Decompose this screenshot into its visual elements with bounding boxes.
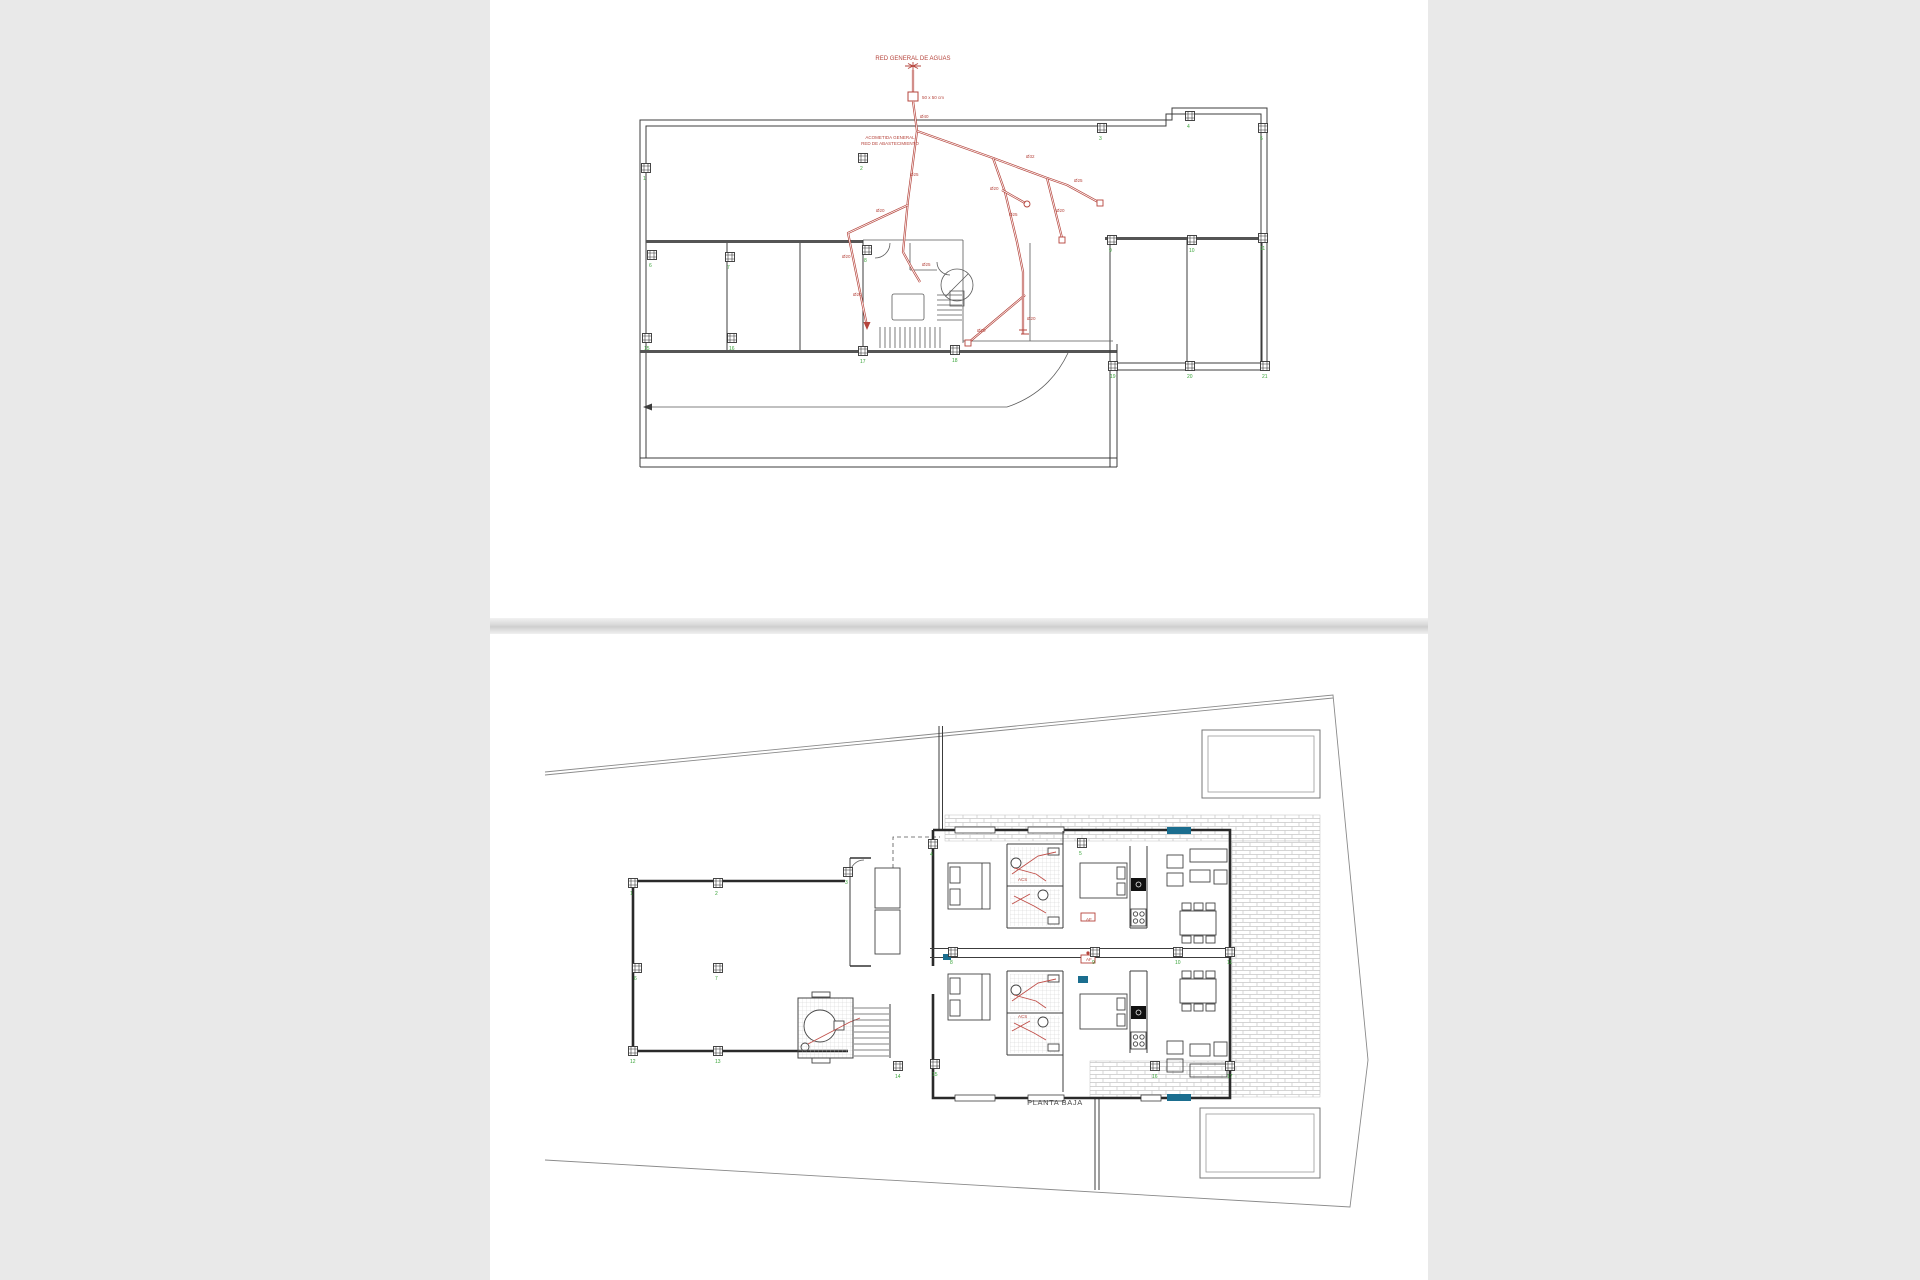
column-marker <box>929 840 938 849</box>
meter-box <box>908 92 918 101</box>
sheet-roof-plan: RED GENERAL DE AGUAS 50 x 50 cm ACOMETID… <box>490 0 1428 620</box>
pipe-label: Ø40 <box>920 114 929 119</box>
column-marker <box>1091 948 1100 957</box>
column-number: 13 <box>715 1059 721 1065</box>
pool-upper <box>1202 730 1320 798</box>
windows <box>943 827 1191 1101</box>
ground-floor-drawing: PLANTA BAJA ACSAFACSAF 12345678910111213… <box>490 634 1428 1280</box>
column-number: 3 <box>845 880 848 886</box>
window-teal-lower <box>1167 1094 1191 1101</box>
column-number: 2 <box>860 166 863 172</box>
pipe-label: Ø20 <box>853 292 862 297</box>
column-number: 3 <box>1099 136 1102 142</box>
column-marker <box>1226 948 1235 957</box>
column-marker <box>1098 124 1107 133</box>
network-title: RED GENERAL DE AGUAS <box>875 56 950 62</box>
column-marker <box>1186 112 1195 121</box>
column-number: 9 <box>1109 248 1112 254</box>
column-marker <box>949 948 958 957</box>
column-marker <box>1188 236 1197 245</box>
toilet <box>1011 985 1021 995</box>
column-marker <box>633 964 642 973</box>
column-number: 10 <box>1189 248 1195 254</box>
pipe-label: Ø20 <box>842 254 851 259</box>
roof-driveway <box>640 344 1117 467</box>
plant-room <box>798 992 860 1063</box>
bed <box>1080 863 1127 898</box>
water-network-annotations: RED GENERAL DE AGUAS 50 x 50 cm ACOMETID… <box>842 56 1083 333</box>
column-number: 7 <box>727 265 730 271</box>
roof-columns: 123456789101115161718192021 <box>642 112 1270 381</box>
sheet-divider <box>490 618 1428 634</box>
pipe-label: Ø25 <box>922 262 931 267</box>
pipe-label: Ø20 <box>977 328 986 333</box>
column-number: 18 <box>952 358 958 364</box>
roof-plan-drawing: RED GENERAL DE AGUAS 50 x 50 cm ACOMETID… <box>490 0 1428 620</box>
coffee-table <box>1190 1044 1210 1056</box>
column-marker <box>1186 362 1195 371</box>
column-number: 10 <box>1175 960 1181 966</box>
column-marker <box>1108 236 1117 245</box>
window-teal-upper <box>1167 827 1191 834</box>
meter-box-label: 50 x 50 cm <box>922 95 944 100</box>
column-number: 16 <box>1152 1074 1158 1080</box>
toilet <box>1038 890 1048 900</box>
column-marker <box>931 1060 940 1069</box>
column-number: 9 <box>1092 960 1095 966</box>
sheet-ground-floor-plan: PLANTA BAJA ACSAFACSAF 12345678910111213… <box>490 634 1428 1280</box>
sofa <box>1190 849 1227 862</box>
column-number: 8 <box>950 960 953 966</box>
pipe-label: Ø20 <box>990 186 999 191</box>
column-marker <box>726 253 735 262</box>
column-marker <box>1078 839 1087 848</box>
column-number: 15 <box>932 1072 938 1078</box>
column-marker <box>648 251 657 260</box>
column-marker <box>894 1062 903 1071</box>
sink <box>1048 975 1059 982</box>
pipe-label: Ø32 <box>1026 154 1035 159</box>
column-marker <box>1226 1062 1235 1071</box>
stairs <box>853 1004 890 1058</box>
water-network <box>848 62 1103 346</box>
column-marker <box>859 347 868 356</box>
sink <box>1048 1044 1059 1051</box>
pipe-label: Ø25 <box>910 172 919 177</box>
column-number: 5 <box>1079 851 1082 857</box>
column-marker <box>1151 1062 1160 1071</box>
main-valve-symbol <box>905 62 921 70</box>
column-marker <box>714 964 723 973</box>
column-number: 6 <box>634 976 637 982</box>
column-marker <box>714 879 723 888</box>
kitchen-sink <box>1131 1006 1146 1019</box>
pipe-label: Ø20 <box>1027 316 1036 321</box>
armchair <box>1167 873 1183 886</box>
screenshot-stage: RED GENERAL DE AGUAS 50 x 50 cm ACOMETID… <box>0 0 1920 1280</box>
column-number: 21 <box>1262 374 1268 380</box>
floor-title: PLANTA BAJA <box>1027 1098 1083 1107</box>
column-marker <box>728 334 737 343</box>
toilet <box>1038 1017 1048 1027</box>
column-marker <box>844 868 853 877</box>
column-number: 11 <box>1227 960 1232 966</box>
roof-outer-walls <box>640 108 1267 467</box>
pipe-label: Ø20 <box>1056 208 1065 213</box>
column-marker <box>1174 948 1183 957</box>
column-number: 12 <box>630 1059 636 1065</box>
armchair <box>1167 1041 1183 1054</box>
column-marker <box>1259 124 1268 133</box>
armchair <box>1167 855 1183 868</box>
column-marker <box>1109 362 1118 371</box>
sink <box>1048 917 1059 924</box>
kitchen-sink <box>1131 878 1146 891</box>
pipe-label: AF <box>1086 917 1092 922</box>
pipe-label: Ø20 <box>876 208 885 213</box>
column-number: 6 <box>649 263 652 269</box>
cooktop <box>1131 1032 1146 1049</box>
column-number: 4 <box>1187 124 1190 130</box>
column-number: 8 <box>864 258 867 264</box>
dining-table <box>1180 979 1216 1003</box>
column-number: 17 <box>1227 1074 1233 1080</box>
bed <box>948 863 990 909</box>
column-number: 7 <box>715 976 718 982</box>
column-marker <box>629 879 638 888</box>
column-number: 1 <box>630 891 633 897</box>
column-marker <box>863 246 872 255</box>
entry-hall <box>850 858 900 966</box>
floor-columns: 1234567891011121314151617 <box>629 839 1235 1081</box>
column-marker <box>629 1047 638 1056</box>
toilet <box>1011 858 1021 868</box>
sink <box>1048 848 1059 855</box>
cooktop <box>1131 909 1146 926</box>
pipe-label: Ø25 <box>1009 212 1018 217</box>
column-number: 11 <box>1260 246 1265 252</box>
upper-dwelling <box>948 831 1227 943</box>
column-number: 19 <box>1110 374 1116 380</box>
column-marker <box>951 346 960 355</box>
column-number: 4 <box>930 852 933 858</box>
pipe-label: ACS <box>1018 1014 1027 1019</box>
column-number: 17 <box>860 359 866 365</box>
column-number: 5 <box>1260 136 1263 142</box>
column-marker <box>859 154 868 163</box>
column-marker <box>643 334 652 343</box>
column-marker <box>714 1047 723 1056</box>
column-marker <box>642 164 651 173</box>
column-number: 2 <box>715 891 718 897</box>
column-marker <box>1259 234 1268 243</box>
dining-table <box>1180 911 1216 935</box>
column-number: 14 <box>895 1074 901 1080</box>
pipe-arrow <box>864 322 871 330</box>
column-number: 1 <box>643 176 646 182</box>
column-number: 15 <box>644 346 650 352</box>
bed <box>948 974 990 1020</box>
pool-lower <box>1200 1108 1320 1178</box>
column-number: 16 <box>729 346 735 352</box>
column-marker <box>1261 362 1270 371</box>
pipe-label: Ø25 <box>1074 178 1083 183</box>
note-line2: RED DE ABASTECIMIENTO <box>861 141 919 146</box>
coffee-table <box>1190 870 1210 882</box>
pipe-label: ACS <box>1018 877 1027 882</box>
note-line1: ACOMETIDA GENERAL <box>865 135 915 140</box>
column-number: 20 <box>1187 374 1193 380</box>
bed <box>1080 994 1127 1029</box>
